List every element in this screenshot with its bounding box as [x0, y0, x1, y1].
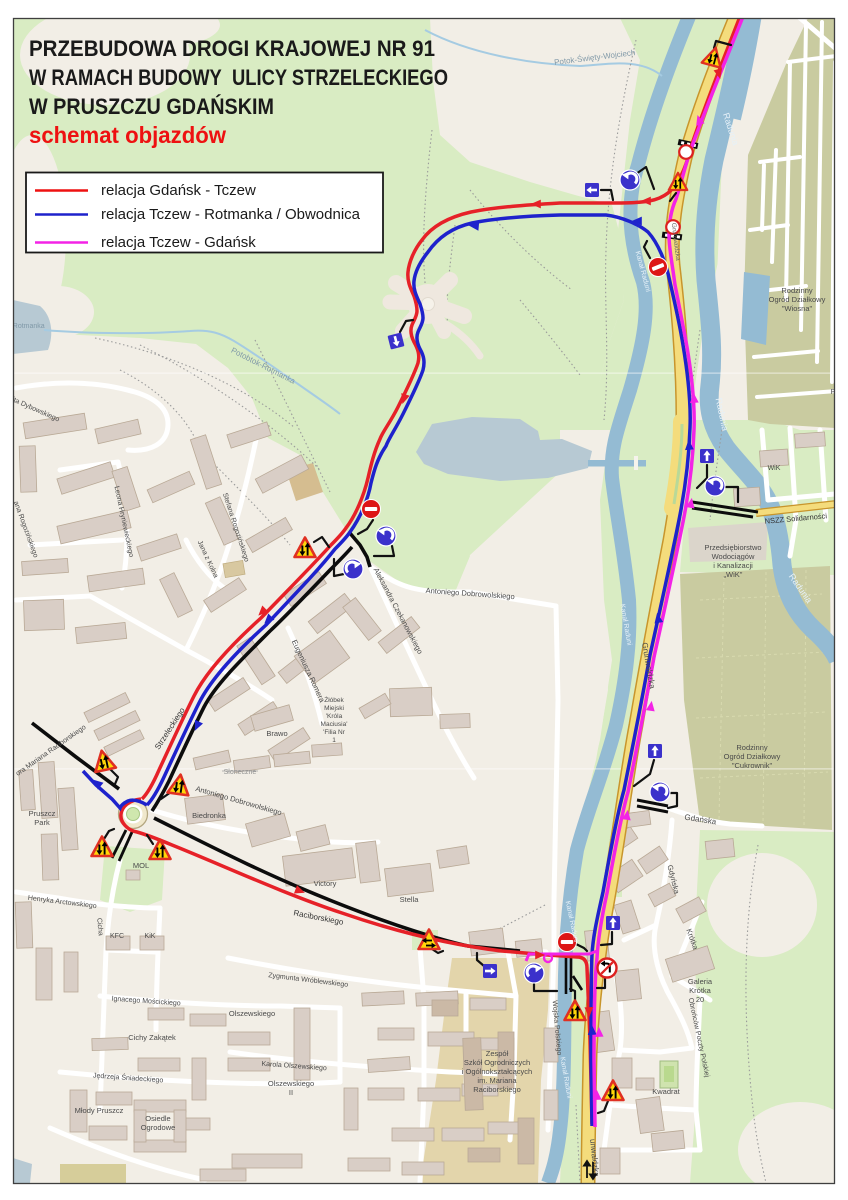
- svg-text:KiK: KiK: [145, 933, 156, 940]
- svg-text:Osiedle: Osiedle: [145, 1114, 170, 1123]
- svg-text:'Filia Nr: 'Filia Nr: [323, 729, 346, 736]
- svg-text:Rodzinny: Rodzinny: [736, 743, 768, 752]
- svg-text:Cichy Zakątek: Cichy Zakątek: [128, 1033, 176, 1042]
- svg-text:i Kanalizacji: i Kanalizacji: [713, 561, 753, 570]
- svg-text:1: 1: [332, 737, 336, 744]
- svg-text:i Ogólnokształcących: i Ogólnokształcących: [462, 1067, 532, 1076]
- svg-text:Wodociągów: Wodociągów: [712, 552, 755, 561]
- svg-text:Żłóbek: Żłóbek: [324, 695, 344, 704]
- svg-text:„WiK": „WiK": [724, 570, 743, 579]
- svg-text:schemat objazdów: schemat objazdów: [29, 122, 226, 148]
- svg-text:Olszewskiego: Olszewskiego: [268, 1079, 314, 1088]
- svg-text:Pruszcz: Pruszcz: [29, 809, 56, 818]
- svg-text:Krótka: Krótka: [689, 986, 712, 995]
- svg-text:"Cukrownik": "Cukrownik": [732, 761, 773, 770]
- svg-text:Ogrodowe: Ogrodowe: [141, 1123, 176, 1132]
- svg-text:Galeria: Galeria: [688, 977, 713, 986]
- svg-text:relacja Tczew - Rotmanka / Obw: relacja Tczew - Rotmanka / Obwodnica: [101, 206, 361, 223]
- svg-text:W PRUSZCZU GDAŃSKIM: W PRUSZCZU GDAŃSKIM: [29, 94, 274, 119]
- svg-text:Szkół Ogrodniczych: Szkół Ogrodniczych: [464, 1058, 530, 1067]
- svg-text:Ogród Działkowy: Ogród Działkowy: [769, 295, 826, 304]
- svg-text:MOL: MOL: [133, 861, 149, 870]
- svg-text:Maciusia': Maciusia': [321, 721, 348, 728]
- svg-text:II: II: [289, 1088, 293, 1097]
- svg-text:Ogród Działkowy: Ogród Działkowy: [724, 752, 781, 761]
- svg-text:Brawo: Brawo: [266, 729, 287, 738]
- svg-text:Młody Pruszcz: Młody Pruszcz: [75, 1106, 124, 1115]
- svg-text:Biedronka: Biedronka: [192, 811, 227, 820]
- svg-text:Stella: Stella: [400, 895, 420, 904]
- svg-text:Kwadrat: Kwadrat: [652, 1087, 680, 1096]
- svg-text:Miejski: Miejski: [324, 705, 344, 712]
- svg-text:Olszewskiego: Olszewskiego: [229, 1009, 275, 1018]
- svg-text:Rodzinny: Rodzinny: [781, 286, 813, 295]
- svg-text:KFC: KFC: [110, 933, 124, 940]
- svg-text:'Króla: 'Króla: [326, 713, 343, 720]
- svg-text:Raciborskiego: Raciborskiego: [473, 1085, 521, 1094]
- svg-text:WiK: WiK: [768, 465, 781, 472]
- svg-text:relacja Gdańsk - Tczew: relacja Gdańsk - Tczew: [101, 182, 256, 199]
- svg-text:PRZEBUDOWA DROGI KRAJOWEJ NR 9: PRZEBUDOWA DROGI KRAJOWEJ NR 91: [29, 36, 435, 61]
- svg-text:Zespół: Zespół: [486, 1049, 509, 1058]
- svg-text:im. Mariana: im. Mariana: [477, 1076, 517, 1085]
- svg-text:20: 20: [696, 995, 704, 1004]
- svg-text:relacja Tczew - Gdańsk: relacja Tczew - Gdańsk: [101, 234, 256, 251]
- svg-text:Victory: Victory: [314, 879, 337, 888]
- svg-text:Park: Park: [34, 818, 50, 827]
- svg-text:Przedsiębiorstwo: Przedsiębiorstwo: [704, 543, 761, 552]
- svg-text:"Wiosna": "Wiosna": [782, 304, 813, 313]
- svg-text:W RAMACH BUDOWY ULICY STRZELE: W RAMACH BUDOWY ULICY STRZELECKIEGO: [29, 65, 448, 90]
- svg-text:Słoneczne: Słoneczne: [224, 769, 257, 776]
